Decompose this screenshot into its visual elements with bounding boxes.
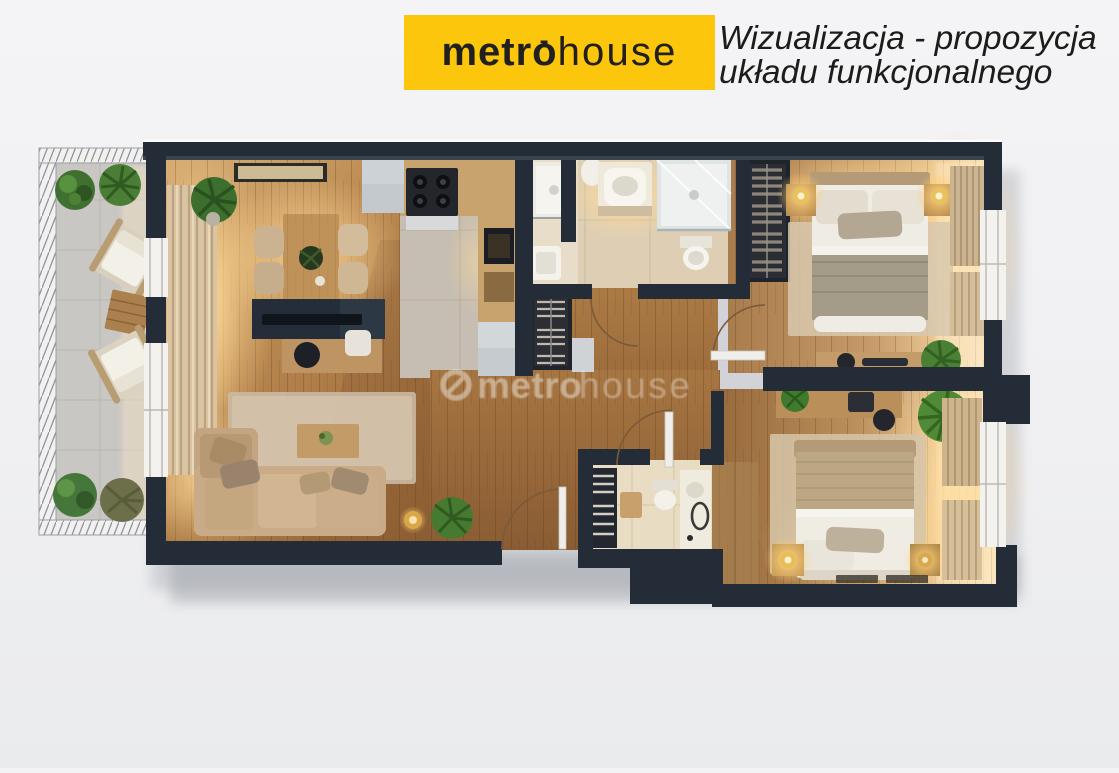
svg-text:metro: metro: [477, 365, 582, 406]
svg-text:house: house: [579, 365, 692, 406]
